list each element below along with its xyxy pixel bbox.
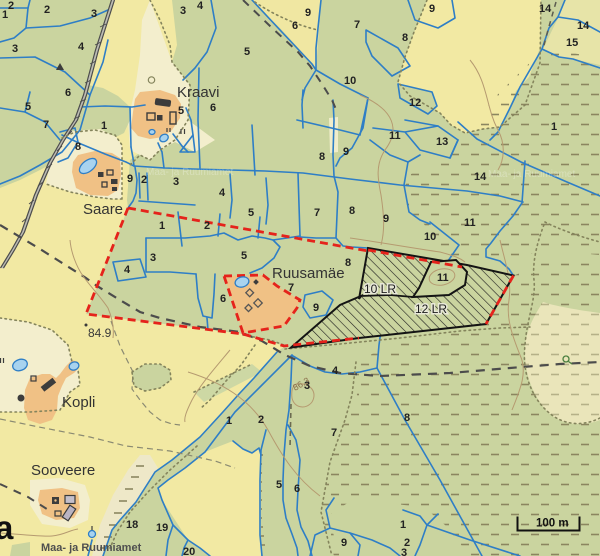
svg-text:1: 1: [226, 415, 232, 427]
svg-text:2: 2: [141, 174, 147, 186]
svg-text:8: 8: [345, 257, 351, 269]
svg-text:7: 7: [331, 427, 337, 439]
svg-text:84.9: 84.9: [88, 326, 112, 340]
svg-text:6: 6: [210, 102, 216, 114]
svg-text:9: 9: [383, 213, 389, 225]
svg-text:4: 4: [197, 0, 204, 12]
svg-text:Kraavi: Kraavi: [177, 84, 220, 101]
svg-text:6: 6: [220, 293, 226, 305]
svg-text:8: 8: [319, 151, 325, 163]
svg-text:Saare: Saare: [83, 201, 123, 218]
svg-text:7: 7: [314, 207, 320, 219]
svg-text:2: 2: [258, 414, 264, 426]
svg-text:3: 3: [12, 43, 18, 55]
svg-text:10: 10: [424, 231, 436, 243]
svg-text:9: 9: [313, 302, 319, 314]
svg-text:Maa- ja Ruumiamet: Maa- ja Ruumiamet: [146, 167, 233, 178]
svg-text:11: 11: [464, 217, 476, 229]
svg-text:7: 7: [288, 282, 294, 294]
svg-text:4: 4: [78, 41, 85, 53]
svg-text:5: 5: [241, 250, 247, 262]
svg-text:11: 11: [437, 272, 449, 284]
svg-text:1: 1: [400, 519, 406, 531]
svg-text:5: 5: [244, 46, 250, 58]
svg-text:3: 3: [150, 252, 156, 264]
svg-text:13: 13: [436, 136, 448, 148]
svg-text:1: 1: [101, 120, 107, 132]
svg-text:5: 5: [25, 101, 31, 113]
svg-text:2: 2: [204, 220, 210, 232]
svg-text:100 m: 100 m: [536, 518, 569, 530]
svg-text:9: 9: [343, 146, 349, 158]
svg-text:11: 11: [389, 130, 401, 142]
svg-text:12: 12: [409, 97, 421, 109]
svg-text:15: 15: [566, 37, 578, 49]
svg-text:Kopli: Kopli: [62, 394, 95, 411]
svg-text:9: 9: [305, 7, 311, 19]
svg-text:Ruusamäe: Ruusamäe: [272, 265, 345, 282]
svg-text:3: 3: [304, 380, 310, 392]
svg-text:8: 8: [349, 205, 355, 217]
svg-text:3: 3: [401, 547, 407, 556]
svg-text:18: 18: [126, 519, 138, 531]
svg-text:2: 2: [44, 4, 50, 16]
svg-text:4: 4: [124, 264, 131, 276]
svg-text:7: 7: [354, 19, 360, 31]
svg-text:9: 9: [127, 173, 133, 185]
svg-text:10: 10: [344, 75, 356, 87]
svg-text:5: 5: [276, 479, 282, 491]
svg-text:7: 7: [43, 119, 49, 131]
svg-text:6: 6: [294, 483, 300, 495]
svg-text:Sooveere: Sooveere: [31, 462, 95, 479]
svg-text:4: 4: [219, 187, 226, 199]
svg-text:Maa- ja Ruumiamet: Maa- ja Ruumiamet: [41, 542, 142, 554]
svg-text:20: 20: [183, 546, 195, 556]
svg-text:4: 4: [332, 365, 339, 377]
svg-text:12 LR: 12 LR: [415, 302, 447, 316]
svg-text:8: 8: [75, 141, 81, 153]
svg-text:Maa- ja Ruumiamet: Maa- ja Ruumiamet: [488, 169, 575, 180]
svg-text:3: 3: [173, 176, 179, 188]
svg-text:5: 5: [248, 207, 254, 219]
svg-text:2: 2: [8, 0, 14, 12]
svg-text:9: 9: [429, 3, 435, 15]
svg-text:8: 8: [404, 412, 410, 424]
svg-text:10 LR: 10 LR: [364, 282, 396, 296]
svg-text:6: 6: [65, 87, 71, 99]
svg-text:1: 1: [551, 121, 557, 133]
svg-text:14: 14: [474, 171, 487, 183]
svg-text:8: 8: [402, 32, 408, 44]
svg-text:3: 3: [180, 5, 186, 17]
svg-text:6: 6: [292, 20, 298, 32]
svg-text:9: 9: [341, 537, 347, 549]
svg-text:1: 1: [159, 220, 165, 232]
svg-text:14: 14: [577, 20, 590, 32]
svg-text:5: 5: [178, 105, 184, 117]
svg-text:a: a: [0, 509, 14, 546]
svg-text:14: 14: [539, 3, 552, 15]
svg-text:19: 19: [156, 522, 168, 534]
svg-text:3: 3: [91, 8, 97, 20]
